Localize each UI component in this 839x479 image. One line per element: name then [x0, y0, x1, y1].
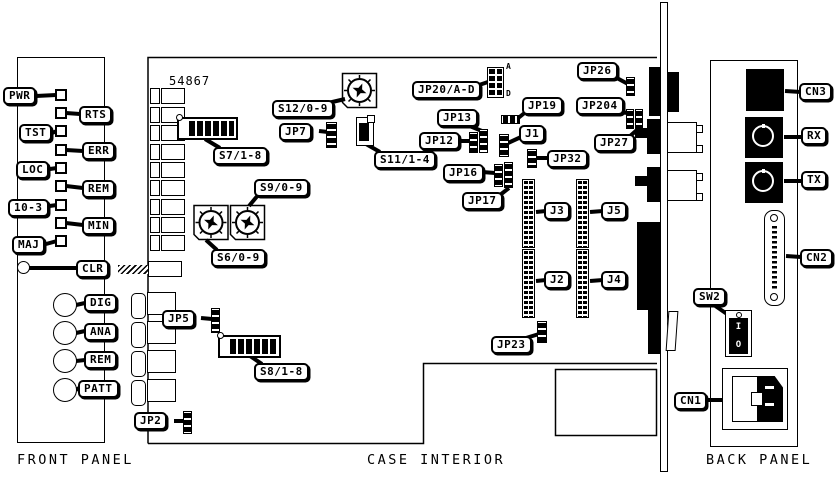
header-jp20	[487, 67, 504, 98]
callout-jp32: JP32	[547, 150, 588, 168]
iec-pin-slot	[765, 403, 774, 406]
led-housing	[150, 125, 160, 141]
dig-button	[53, 293, 77, 317]
callout-sw2: SW2	[693, 288, 726, 306]
led-housing	[161, 180, 185, 196]
patt-button	[53, 378, 77, 402]
bnc-barrel	[667, 122, 697, 153]
led-tst	[55, 125, 67, 137]
edge-connector-top	[649, 67, 661, 116]
jumper-jp32	[527, 149, 537, 168]
led-housing	[150, 107, 160, 123]
jumper-jp12	[469, 132, 478, 153]
callout-rts: RTS	[79, 106, 112, 124]
fuse-drawer-notch	[751, 392, 763, 406]
button-housing	[147, 350, 176, 373]
switch-off-mark: O	[736, 340, 741, 350]
rotary-switch-s6	[194, 206, 228, 240]
callout-maj: MAJ	[12, 236, 45, 254]
callout-jp27: JP27	[594, 134, 635, 152]
led-housing	[161, 88, 185, 104]
rem-button	[53, 349, 77, 373]
callout-rem: REM	[82, 180, 115, 198]
callout-s6: S6/0-9	[211, 249, 266, 267]
callout-s7: S7/1-8	[213, 147, 268, 165]
bnc-tab	[696, 173, 703, 181]
bnc-barrel	[667, 170, 697, 201]
rx-bnc-connector	[745, 117, 783, 158]
sw2-rocker: I O	[729, 318, 748, 354]
dip-switch-s7	[177, 117, 238, 140]
callout-j4: J4	[601, 271, 627, 289]
bnc-body	[647, 119, 661, 154]
front-panel-title: FRONT PANEL	[17, 452, 134, 468]
led-err	[55, 144, 67, 156]
iec-pin-slot	[765, 386, 774, 389]
bnc-tab	[696, 193, 703, 201]
bnc-tab	[696, 145, 703, 153]
callout-jp23: JP23	[491, 336, 532, 354]
bnc-tab	[696, 125, 703, 133]
jumper-jp27	[635, 109, 643, 129]
led-housing	[150, 88, 160, 104]
led-housing	[150, 180, 160, 196]
led-pwr	[55, 89, 67, 101]
dsub-pins	[772, 226, 777, 291]
led-housing	[161, 199, 185, 215]
button-housing	[147, 379, 176, 402]
jumper-jp23	[537, 321, 547, 343]
cn2-dsub-connector	[764, 210, 785, 306]
dsub-screw-hole	[770, 293, 778, 301]
button-housing	[131, 322, 146, 348]
jumper-jp26	[626, 77, 635, 96]
callout-j2: J2	[544, 271, 570, 289]
callout-jp26: JP26	[577, 62, 618, 80]
jp20-pin-a-mark: A	[506, 63, 511, 71]
edge-connector-top	[668, 72, 679, 112]
bnc-ring	[752, 170, 774, 192]
led-rts	[55, 107, 67, 119]
jp20-pin-d-mark: D	[506, 90, 511, 98]
bnc-ring	[752, 125, 774, 147]
button-housing	[131, 293, 146, 319]
header-j3	[522, 179, 535, 248]
cn3-connector	[746, 69, 784, 111]
ana-button	[53, 321, 77, 345]
callout-jp12: JP12	[419, 132, 460, 150]
led-housing	[161, 235, 185, 251]
callout-jp2: JP2	[134, 412, 167, 430]
tx-bnc-connector	[745, 162, 783, 203]
led-housing	[161, 217, 185, 233]
callout-loc: LOC	[16, 161, 49, 179]
case-interior-title: CASE INTERIOR	[367, 452, 505, 468]
switch-rear-block	[648, 310, 661, 354]
header-j2	[522, 249, 535, 318]
connector-j1	[499, 134, 509, 157]
callout-patt: PATT	[78, 380, 119, 398]
callout-jp19: JP19	[522, 97, 563, 115]
jumper-jp17	[504, 162, 513, 188]
panel-layout-diagram: PWR RTS TST ERR LOC REM 10-3 MIN MAJ CLR…	[0, 0, 839, 479]
led-min	[55, 217, 67, 229]
callout-rx: RX	[801, 127, 827, 145]
switch-on-mark: I	[736, 322, 741, 332]
callout-cn2: CN2	[800, 249, 833, 267]
header-j4	[576, 249, 589, 318]
jumper-jp7	[326, 122, 337, 148]
callout-min: MIN	[82, 217, 115, 235]
callout-jp204: JP204	[576, 97, 624, 115]
led-housing	[150, 162, 160, 178]
led-housing	[161, 162, 185, 178]
callout-cn3: CN3	[799, 83, 832, 101]
callout-jp13: JP13	[437, 109, 478, 127]
board-number: 54867	[169, 74, 210, 88]
callout-s12: S12/0-9	[272, 100, 334, 118]
led-housing	[150, 235, 160, 251]
callout-err: ERR	[82, 142, 115, 160]
bnc-body	[647, 167, 661, 202]
led-10-3	[55, 199, 67, 211]
switch-s11-actuator	[359, 123, 369, 141]
callout-jp20: JP20/A-D	[412, 81, 481, 99]
callout-jp7: JP7	[279, 123, 312, 141]
button-housing	[131, 351, 146, 377]
dsub-screw-hole	[770, 214, 778, 222]
callout-clr: CLR	[76, 260, 109, 278]
dip-switch-s8	[218, 335, 281, 358]
callout-jp5: JP5	[162, 310, 195, 328]
header-j5	[576, 179, 589, 248]
led-maj	[55, 235, 67, 247]
clr-housing	[148, 261, 182, 277]
callout-j3: J3	[544, 202, 570, 220]
rotary-switch-s12	[343, 74, 377, 108]
dsub-rear-block	[637, 222, 661, 310]
back-panel-title: BACK PANEL	[706, 452, 812, 468]
led-housing	[150, 217, 160, 233]
callout-ana: ANA	[84, 323, 117, 341]
led-housing	[161, 144, 185, 160]
callout-s8: S8/1-8	[254, 363, 309, 381]
rotary-switch-s9	[231, 206, 265, 240]
mounting-bracket	[660, 2, 668, 472]
jumper-jp5	[211, 308, 220, 333]
callout-tst: TST	[19, 124, 52, 142]
callout-pwr: PWR	[3, 87, 36, 105]
jumper-jp19	[501, 115, 520, 124]
callout-s11: S11/1-4	[374, 151, 436, 169]
button-housing	[131, 380, 146, 406]
clr-shaft-hatch	[118, 265, 148, 274]
clr-button	[17, 261, 30, 274]
led-loc	[55, 162, 67, 174]
jumper-jp2	[183, 411, 192, 434]
callout-10-3: 10-3	[8, 199, 49, 217]
switch-s11-tab	[367, 115, 375, 123]
callout-j5: J5	[601, 202, 627, 220]
callout-cn1: CN1	[674, 392, 707, 410]
jumper-jp204	[626, 109, 634, 129]
jumper-jp16	[494, 164, 503, 187]
callout-s9: S9/0-9	[254, 179, 309, 197]
led-housing	[150, 144, 160, 160]
led-rem	[55, 180, 67, 192]
callout-jp16: JP16	[443, 164, 484, 182]
callout-j1: J1	[519, 125, 545, 143]
callout-dig: DIG	[84, 294, 117, 312]
callout-rem2: REM	[84, 351, 117, 369]
callout-tx: TX	[801, 171, 827, 189]
led-housing	[150, 199, 160, 215]
jumper-jp13	[479, 129, 488, 153]
callout-jp17: JP17	[462, 192, 503, 210]
